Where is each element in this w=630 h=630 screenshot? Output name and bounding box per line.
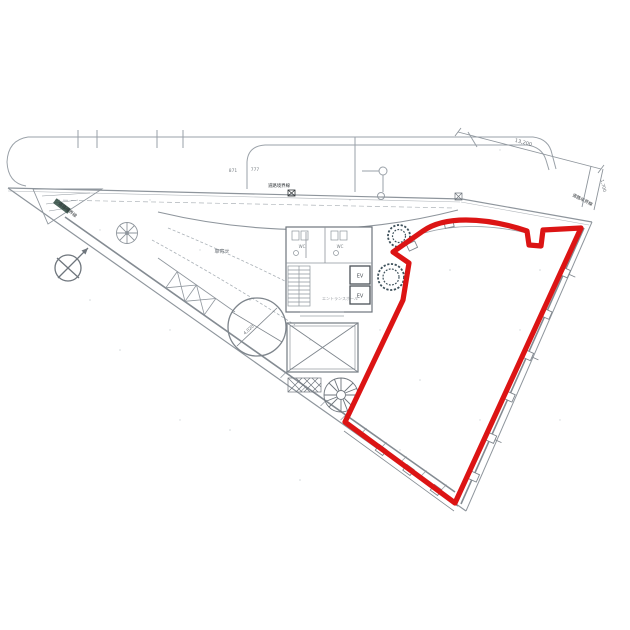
boundary-north	[8, 188, 462, 199]
elevator-shaft: EV	[350, 286, 370, 304]
north-arrow-icon	[55, 248, 88, 281]
boundary-labels: 道路境界線 道路境界線 道路境界線	[57, 182, 595, 219]
wall-south-double	[344, 431, 454, 511]
elevator-shaft: EV	[350, 266, 370, 284]
wall-southwest	[65, 217, 455, 492]
wc-label: WC	[337, 244, 344, 249]
building-core: WC WC EV EV エントランスホール	[286, 227, 372, 316]
red-unit-outline	[345, 220, 581, 503]
tree-icon	[383, 269, 399, 285]
wc-label: WC	[299, 244, 306, 249]
setback-dashed-line	[55, 200, 455, 208]
dimension-text: 871	[229, 168, 238, 174]
tree-icon	[393, 230, 406, 243]
porte-cochere-label: 車寄せ	[214, 248, 229, 255]
southwest-curb-hatching	[281, 372, 447, 491]
entrance-hall-label: エントランスホール	[322, 295, 358, 301]
street-inner-lane	[247, 145, 549, 189]
dimension-text: 1,700	[599, 179, 608, 193]
floor-plan-page: 4,020 WC WC EV EV	[0, 0, 630, 630]
elevator-label: EV	[357, 274, 364, 280]
entrance-steps	[300, 312, 344, 316]
tree-icon	[378, 264, 404, 290]
car-turntable: 4,020	[228, 298, 286, 356]
shaft-x-mark	[166, 272, 197, 302]
site-plan-svg: 4,020 WC WC EV EV	[0, 0, 630, 630]
corner-spiral-stair-icon	[117, 223, 138, 244]
street-left-cap	[7, 137, 28, 186]
dimension-text: 13,200	[514, 138, 532, 148]
survey-marker-icon	[379, 167, 387, 175]
service-room-band	[158, 258, 235, 315]
void-skylight	[287, 323, 358, 372]
dimension-line-northeast	[458, 132, 601, 169]
boundary-label: 道路境界線	[268, 182, 291, 189]
dimension-text: 777	[251, 167, 260, 173]
boundary-east	[466, 222, 592, 511]
survey-marker-icon	[378, 193, 385, 200]
street-top-edge	[28, 137, 556, 169]
shaft-x-mark	[185, 285, 216, 315]
